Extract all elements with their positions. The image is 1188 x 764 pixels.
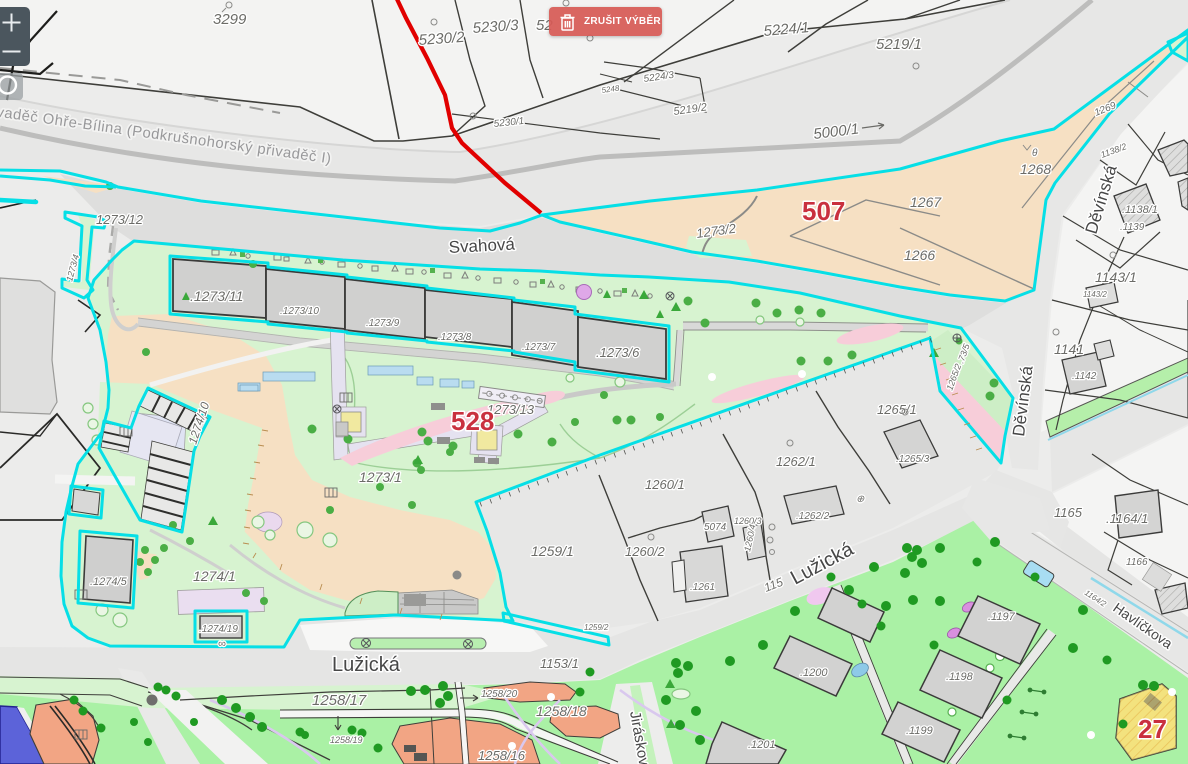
svg-text:θ: θ	[1032, 148, 1038, 159]
svg-text:.1262/2: .1262/2	[796, 511, 830, 522]
svg-text:.1273/10: .1273/10	[280, 306, 319, 317]
svg-text:.1142: .1142	[1072, 371, 1097, 382]
svg-text:1153/1: 1153/1	[540, 656, 579, 671]
svg-text:1273/1: 1273/1	[359, 469, 402, 485]
svg-text:507: 507	[802, 196, 845, 226]
svg-text:5074: 5074	[704, 522, 727, 533]
svg-text:1143/1: 1143/1	[1095, 269, 1137, 285]
svg-text:.1273/11: .1273/11	[190, 288, 243, 304]
svg-text:Lužická: Lužická	[332, 654, 401, 676]
svg-text:.1199: .1199	[906, 725, 933, 737]
svg-text:.1197: .1197	[988, 611, 1016, 623]
svg-text:.1200: .1200	[800, 667, 828, 679]
svg-text:1265/1: 1265/1	[877, 402, 917, 417]
svg-text:.1139: .1139	[1120, 222, 1145, 233]
svg-text:1262/1: 1262/1	[776, 454, 816, 469]
svg-text:.1273/9: .1273/9	[366, 318, 400, 329]
svg-text:5219/1: 5219/1	[876, 36, 922, 53]
svg-text:528: 528	[451, 406, 494, 436]
svg-text:1258/19: 1258/19	[330, 735, 363, 745]
svg-text:.1265/3: .1265/3	[896, 454, 930, 465]
svg-text:1143/2: 1143/2	[1083, 290, 1107, 299]
svg-text:1266: 1266	[904, 247, 935, 263]
svg-text:1260/1: 1260/1	[645, 477, 685, 492]
svg-text:.1274/5: .1274/5	[90, 576, 128, 588]
svg-text:5230/2: 5230/2	[418, 29, 466, 49]
svg-text:.1273/8: .1273/8	[438, 332, 472, 343]
svg-text:.1273/7: .1273/7	[522, 342, 556, 353]
svg-text:1258/16: 1258/16	[478, 748, 526, 763]
svg-text:.1261: .1261	[690, 582, 715, 593]
svg-text:1260/2: 1260/2	[625, 544, 666, 559]
svg-text:1166: 1166	[1126, 557, 1148, 568]
svg-text:1258/20: 1258/20	[481, 689, 518, 700]
svg-text:.1138/1: .1138/1	[1122, 204, 1158, 216]
svg-text:1259/2: 1259/2	[584, 623, 609, 632]
svg-text:⊕: ⊕	[856, 494, 865, 505]
svg-text:1258/18: 1258/18	[536, 703, 587, 719]
svg-text:.1198: .1198	[946, 671, 974, 683]
svg-text:∞: ∞	[218, 638, 226, 650]
svg-text:1165: 1165	[1054, 505, 1083, 520]
svg-text:5230/3: 5230/3	[472, 17, 520, 37]
svg-text:.1201: .1201	[748, 739, 776, 751]
svg-text:3299: 3299	[213, 11, 247, 28]
svg-text:1259/1: 1259/1	[531, 543, 574, 559]
svg-text:1268: 1268	[1020, 161, 1051, 177]
svg-text:1274/1: 1274/1	[193, 568, 236, 584]
svg-text:1258/17: 1258/17	[312, 692, 367, 709]
svg-text:Svahová: Svahová	[448, 235, 516, 257]
svg-text:1141: 1141	[1054, 341, 1084, 357]
svg-text:1273/12: 1273/12	[96, 212, 144, 227]
svg-text:1267: 1267	[910, 194, 942, 210]
svg-text:.1274/19: .1274/19	[199, 624, 238, 635]
svg-text:27: 27	[1138, 714, 1167, 744]
svg-text:.1273/6: .1273/6	[596, 345, 640, 360]
svg-text:.1164/1: .1164/1	[1106, 511, 1148, 526]
